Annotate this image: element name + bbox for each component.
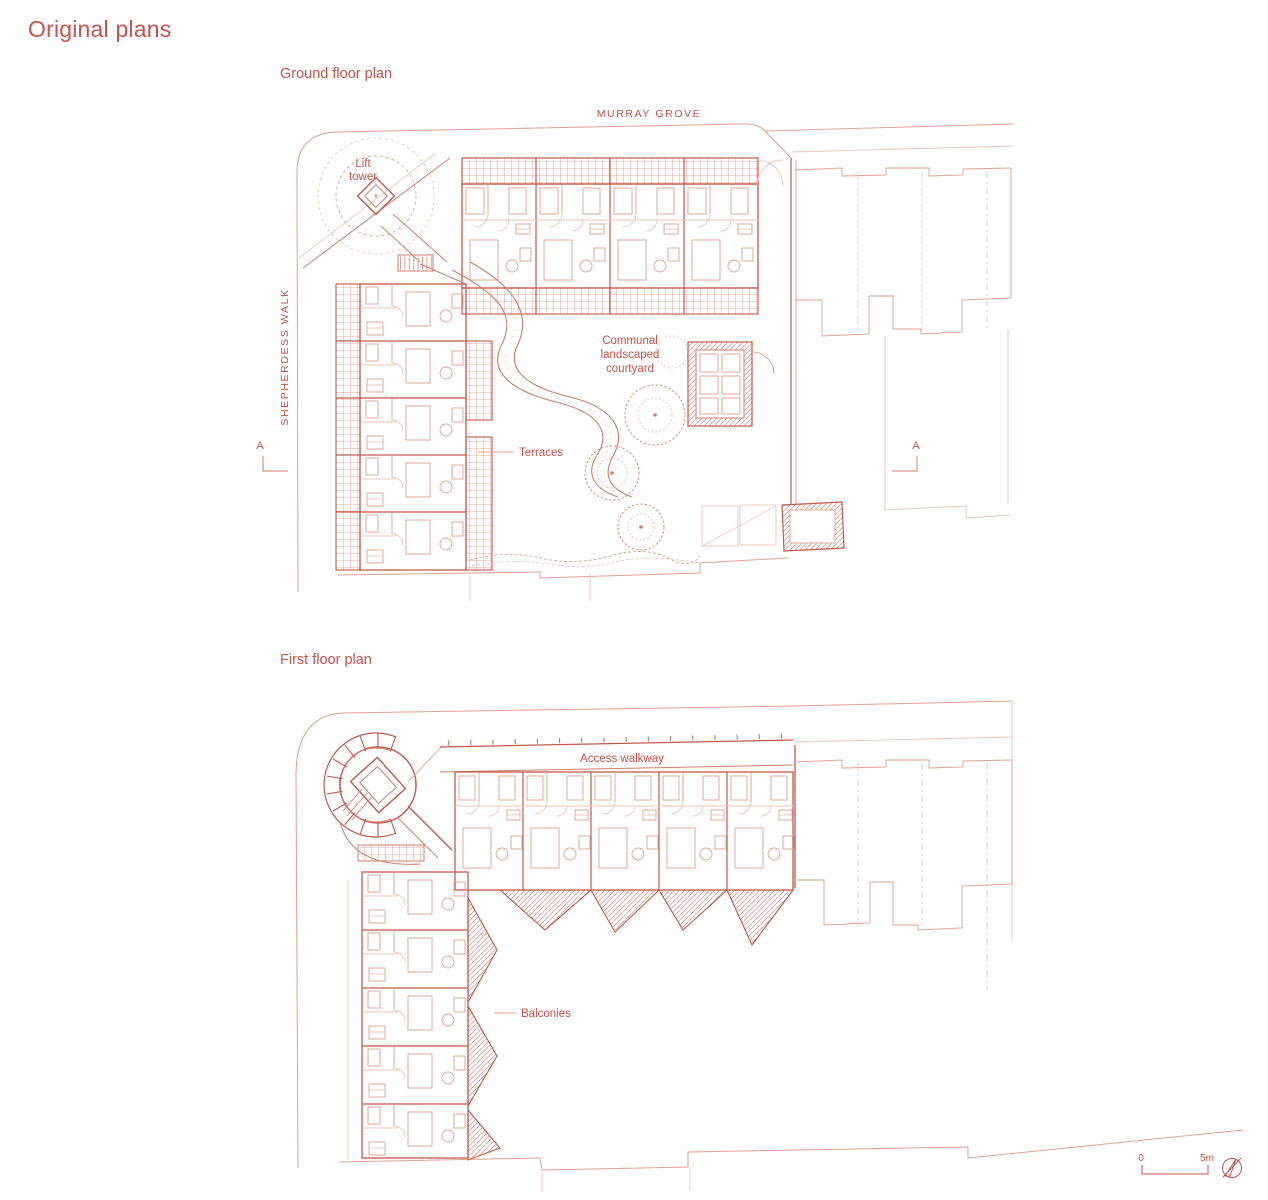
courtyard-label-line3: courtyard bbox=[606, 363, 654, 375]
terraces-label: Terraces bbox=[519, 447, 563, 459]
first-floor-plan-drawing: Access walkway Balconies bbox=[230, 640, 1050, 1200]
site-boundary-first bbox=[296, 701, 1243, 1192]
section-marker-a-left: A bbox=[256, 440, 264, 452]
neighbour-buildings bbox=[795, 168, 1011, 518]
ground-floor-plan-drawing: MURRAY GROVE SHEPHERDESS WALK Lift tower… bbox=[230, 95, 1040, 610]
garden-shed bbox=[782, 502, 844, 551]
page-title: Original plans bbox=[28, 16, 171, 43]
tree bbox=[618, 504, 664, 550]
tree bbox=[625, 385, 685, 445]
tree bbox=[585, 446, 639, 500]
garden-pavilion bbox=[688, 342, 774, 426]
north-arrow-icon bbox=[1223, 1158, 1242, 1178]
murray-grove-wing-first bbox=[455, 745, 795, 945]
page: Original plans Ground floor plan First f… bbox=[0, 0, 1268, 1200]
first-plan-annotations: Access walkway Balconies bbox=[494, 753, 664, 1020]
site-boundary bbox=[297, 124, 1013, 601]
balcony-sails-west bbox=[468, 898, 500, 1160]
access-walkway-label: Access walkway bbox=[580, 753, 664, 765]
lift-tower-label-line2: tower bbox=[349, 171, 377, 183]
section-marker-a-right: A bbox=[912, 440, 920, 452]
balcony-sails-top bbox=[500, 890, 793, 945]
lift-tower-label-line1: Lift bbox=[355, 158, 371, 170]
shepherdess-walk-wing-first bbox=[348, 845, 500, 1160]
lift-tower bbox=[318, 138, 447, 271]
scale-zero-label: 0 bbox=[1138, 1153, 1144, 1164]
courtyard-label-line2: landscaped bbox=[601, 349, 660, 361]
stair-flight bbox=[343, 789, 372, 820]
neighbour-buildings-first bbox=[797, 760, 1012, 990]
east-boundary-wall bbox=[757, 158, 796, 505]
street-label-murray-grove: MURRAY GROVE bbox=[597, 108, 702, 120]
balconies-label: Balconies bbox=[521, 1008, 571, 1020]
scale-5m-label: 5m bbox=[1200, 1153, 1214, 1164]
courtyard-label-line1: Communal bbox=[602, 335, 658, 347]
murray-grove-wing bbox=[462, 158, 758, 314]
ground-floor-plan-label: Ground floor plan bbox=[280, 66, 392, 82]
scale-bar: 0 5m bbox=[1120, 1135, 1260, 1190]
street-label-shepherdess-walk: SHEPHERDESS WALK bbox=[279, 288, 291, 425]
